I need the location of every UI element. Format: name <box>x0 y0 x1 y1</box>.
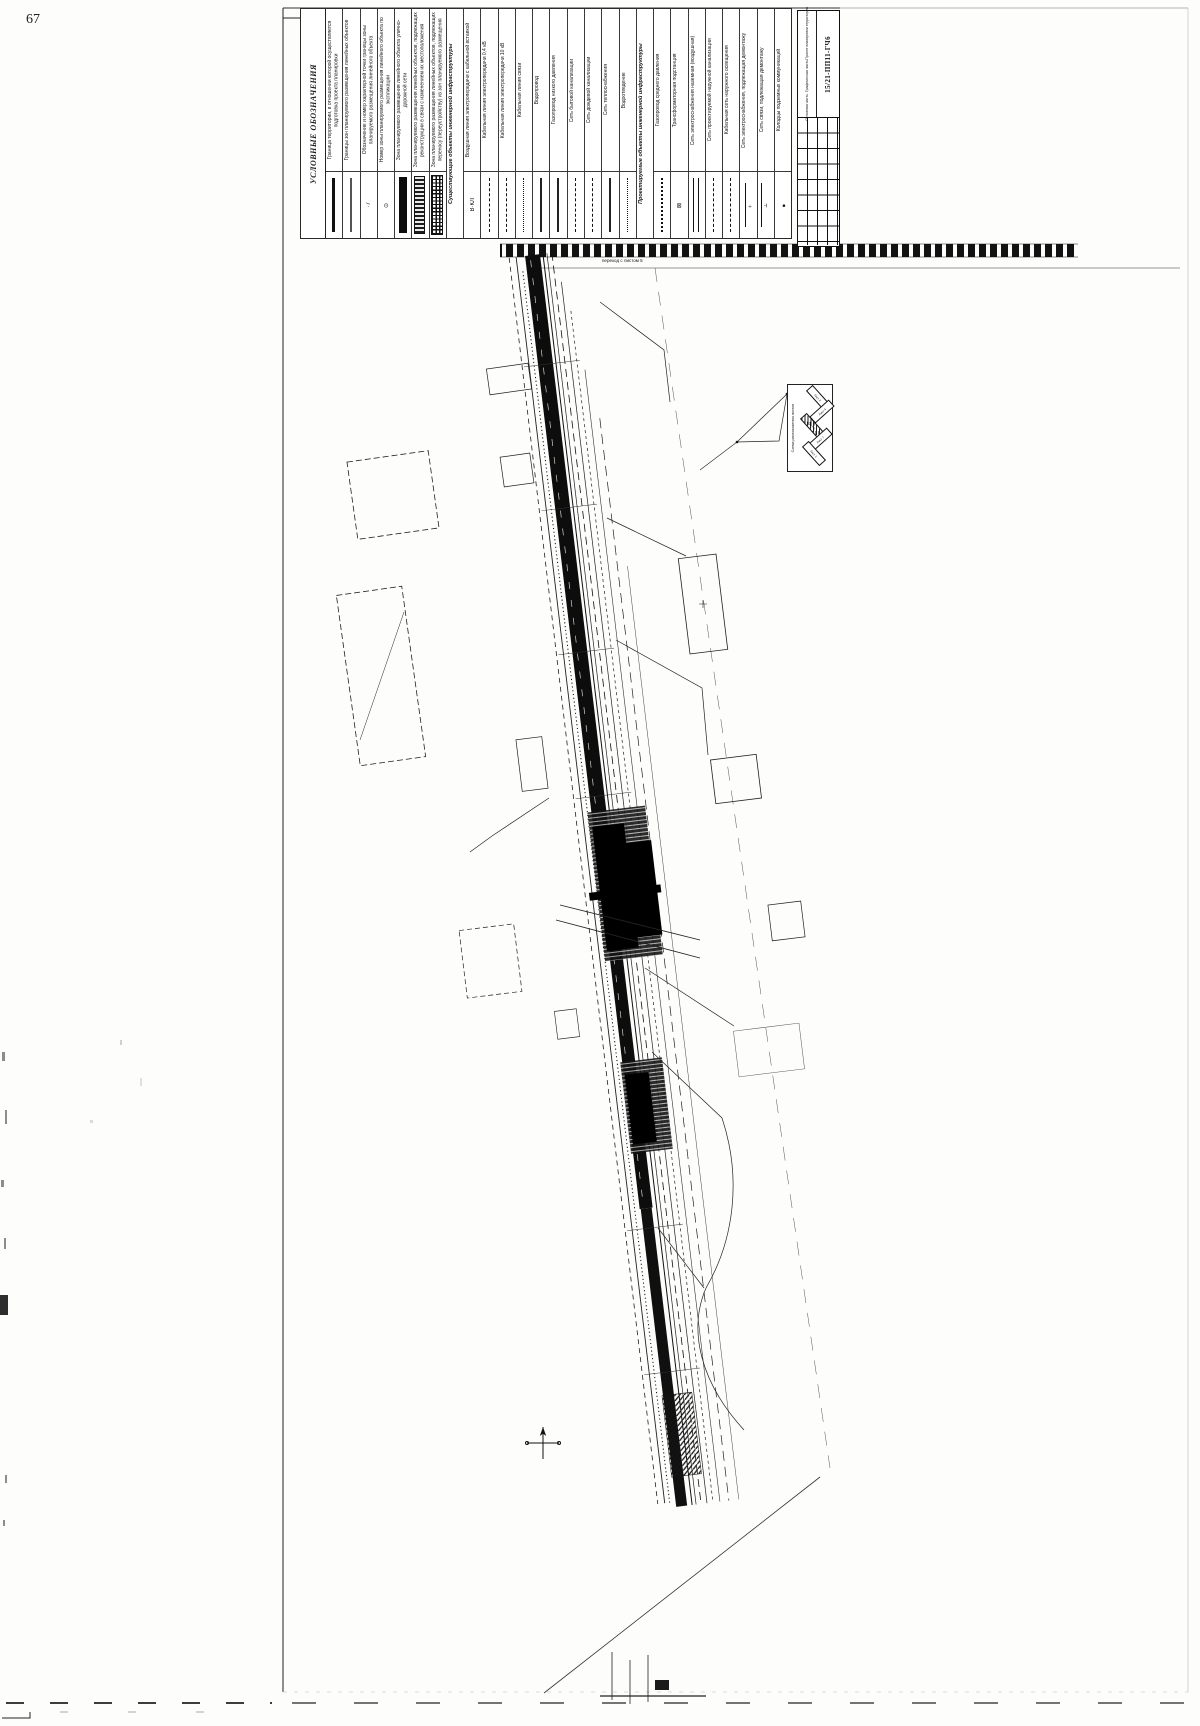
legend-symbol-icon <box>506 178 507 232</box>
legend-entry-symbol <box>706 171 722 238</box>
legend-entry-symbol <box>723 171 739 238</box>
legend-symbol-icon <box>575 178 576 232</box>
legend-entry-label: Воздушная линия электропередачи с кабель… <box>464 9 480 171</box>
legend-entry: Номер зоны планируемого размещения линей… <box>378 9 395 238</box>
inset-caption: Схема расположения листов <box>791 404 795 452</box>
title-block-project-lines: Проект планировки территории Основная ча… <box>798 11 817 117</box>
top-road-band <box>500 244 1180 268</box>
legend-entry-label: Сеть связи, подлежащая демонтажу <box>758 9 774 171</box>
inset-sheets: Лист 2 Лист 4 Лист 6 Лист 7 Лист 1 <box>797 387 831 469</box>
legend-entry-label: Граница территории, в отношении которой … <box>326 9 342 171</box>
legend-entry: Сеть связи, подлежащая демонтажу ∸ <box>758 9 775 238</box>
legend-entry-label: Сеть теплоснабжения <box>602 9 618 171</box>
legend-entry-symbol: ÷ <box>740 171 756 238</box>
legend-symbol-icon <box>489 178 490 232</box>
legend-entry: Трансформаторная подстанция ⊠ <box>671 9 688 238</box>
legend-entry: Сеть проектируемой наружной канализации <box>706 9 723 238</box>
north-compass-icon <box>526 1427 561 1459</box>
legend-entry-symbol <box>689 171 705 238</box>
project-line-1: Проект планировки территории <box>805 7 810 60</box>
legend-symbol-glyph: ● <box>781 202 787 208</box>
signature-grid <box>798 118 839 245</box>
legend-entry: Водоотведение <box>620 9 637 238</box>
legend-entry-label: Существующие объекты инженерной инфрастр… <box>447 9 463 238</box>
legend-symbol-icon <box>540 178 541 232</box>
legend-entry: Зона планируемого размещения линейных об… <box>430 9 447 238</box>
title-block: Проект планировки территории Основная ча… <box>797 10 840 247</box>
legend-entry-symbol: ⊙ <box>378 171 394 238</box>
inset-sheet-label: Лист 2 <box>813 393 822 402</box>
legend-entry: Проектируемые объекты инженерной инфраст… <box>637 9 654 238</box>
legend-symbol-icon <box>332 178 335 232</box>
legend-entry-symbol <box>550 171 566 238</box>
legend-entries: Граница территории, в отношении которой … <box>326 9 791 238</box>
legend-entry-label: Сеть электроснабжения наземная (воздушна… <box>689 9 705 171</box>
legend-entry-symbol: В·КЛ <box>464 171 480 238</box>
legend-entry-label: Зона планируемого размещения линейного о… <box>395 9 411 171</box>
legend-entry-label: Зона планируемого размещения линейных об… <box>412 9 428 171</box>
legend-entry-label: Сеть электроснабжения, подлежащая демонт… <box>740 9 756 171</box>
legend-entry: Граница территории, в отношении которой … <box>326 9 343 238</box>
legend-symbol-icon <box>414 176 425 234</box>
legend-table: УСЛОВНЫЕ ОБОЗНАЧЕНИЯ Граница территории,… <box>300 8 792 239</box>
legend-entry-symbol <box>602 171 618 238</box>
legend-entry-symbol: ● <box>775 171 791 238</box>
legend-entry-symbol <box>412 171 428 238</box>
site-plan-drawing <box>0 0 1200 1726</box>
drawing-number-cell: 15/21-ПП11-ГЧ6 <box>817 11 839 117</box>
legend-entry: Кабельная линия электропередачи 0,4 кВ <box>481 9 498 238</box>
legend-entry-label: Зона планируемого размещения линейных об… <box>430 9 446 171</box>
legend-symbol-icon <box>592 178 593 232</box>
legend-entry-label: Сеть проектируемой наружной канализации <box>706 9 722 171</box>
legend-symbol-icon <box>350 178 352 232</box>
legend-entry-symbol <box>654 171 670 238</box>
legend-entry-label: Колодцы подземных коммуникаций <box>775 9 791 171</box>
legend-entry: Зона планируемого размещения линейных об… <box>412 9 429 238</box>
legend-entry: Обозначение и номер характерной точки гр… <box>361 9 378 238</box>
legend-symbol-icon <box>523 178 524 232</box>
legend-entry-symbol: ⊠ <box>671 171 687 238</box>
main-road-corridor <box>509 248 739 1509</box>
legend-entry-label: Кабельная сеть наружного освещения <box>723 9 739 171</box>
legend-entry-symbol <box>499 171 515 238</box>
bottom-survey-marks <box>600 1652 706 1704</box>
legend-title-cell: УСЛОВНЫЕ ОБОЗНАЧЕНИЯ <box>301 9 326 238</box>
legend-entry-symbol <box>481 171 497 238</box>
legend-symbol-icon <box>745 183 746 227</box>
sheet-border <box>283 8 1188 1692</box>
legend-entry-symbol <box>620 171 636 238</box>
legend-entry: Существующие объекты инженерной инфрастр… <box>447 9 464 238</box>
legend-entry: Зона планируемого размещения линейного о… <box>395 9 412 238</box>
legend-entry: Колодцы подземных коммуникаций ● <box>775 9 791 238</box>
legend-symbol-icon <box>713 178 714 232</box>
legend-entry: Кабельная линия связи <box>516 9 533 238</box>
drawing-number: 15/21-ПП11-ГЧ6 <box>824 36 832 93</box>
legend-entry-label: Кабельная линия электропередачи 10 кВ <box>499 9 515 171</box>
paper-speck <box>120 1040 122 1045</box>
legend-entry-label: Газопровод низкого давления <box>550 9 566 171</box>
legend-entry: Водопровод <box>533 9 550 238</box>
legend-entry: Сеть теплоснабжения <box>602 9 619 238</box>
legend-symbol-icon <box>661 178 663 232</box>
legend-symbol-glyph: ÷ <box>747 202 753 208</box>
film-edge-marks <box>2 1703 1194 1718</box>
legend-symbol-icon <box>557 178 558 232</box>
legend-entry: Газопровод низкого давления <box>550 9 567 238</box>
legend-entry-symbol <box>585 171 601 238</box>
scanned-drawing-page: { "page": { "number": "67" }, "colors": … <box>0 0 1200 1726</box>
legend-symbol-icon <box>730 178 731 232</box>
legend-symbol-glyph: ∸ <box>763 203 770 208</box>
legend-title: УСЛОВНЫЕ ОБОЗНАЧЕНИЯ <box>309 64 318 184</box>
legend-entry-label: Сеть дождевой канализации <box>585 9 601 171</box>
junction-cluster-b <box>620 1057 673 1153</box>
parcel-outlines <box>336 363 805 1077</box>
legend-entry: Воздушная линия электропередачи с кабель… <box>464 9 481 238</box>
legend-symbol-icon <box>609 178 610 232</box>
legend-entry-symbol: ∸ <box>758 171 774 238</box>
legend-entry-symbol <box>343 171 359 238</box>
paper-speck <box>140 1078 142 1086</box>
legend-entry-label: Водопровод <box>533 9 549 171</box>
legend-symbol-glyph: ⊙ <box>383 203 390 208</box>
legend-entry-label: Кабельная линия электропередачи 0,4 кВ <box>481 9 497 171</box>
legend-symbol-icon <box>627 178 628 232</box>
legend-symbol-glyph: ·7 <box>366 202 372 207</box>
legend-entry: Кабельная сеть наружного освещения <box>723 9 740 238</box>
legend-symbol-icon <box>399 177 407 233</box>
legend-entry-symbol <box>430 171 446 238</box>
project-line-2: Основная часть. Графическая часть <box>805 60 810 121</box>
branch-utility-lines <box>470 268 830 1693</box>
legend-entry: Сеть электроснабжения наземная (воздушна… <box>689 9 706 238</box>
junction-cluster-a <box>579 805 668 962</box>
legend-entry-label: Сеть бытовой канализации <box>568 9 584 171</box>
legend-entry-symbol <box>568 171 584 238</box>
legend-entry-label: Обозначение и номер характерной точки гр… <box>361 9 377 171</box>
sheet-scheme-inset: Схема расположения листов Лист 2 Лист 4 … <box>787 384 833 472</box>
title-block-header: Проект планировки территории Основная ча… <box>798 11 839 118</box>
legend-entry-label: Кабельная линия связи <box>516 9 532 171</box>
legend-entry-label: Трансформаторная подстанция <box>671 9 687 171</box>
legend-entry: Сеть бытовой канализации <box>568 9 585 238</box>
legend-entry: Сеть электроснабжения, подлежащая демонт… <box>740 9 757 238</box>
legend-entry-symbol <box>516 171 532 238</box>
legend-entry-symbol: ·7 <box>361 171 377 238</box>
legend-symbol-glyph: ⊠ <box>676 203 683 208</box>
legend-entry-label: Проектируемые объекты инженерной инфраст… <box>637 9 653 238</box>
inset-caption-cell: Схема расположения листов <box>789 385 797 471</box>
legend-entry: Газопровод среднего давления <box>654 9 671 238</box>
inset-sheet-label: Лист 4 <box>817 407 826 416</box>
plan-annotation-top: переход с листом 5 <box>602 258 643 263</box>
inset-sheet-label: Лист 6 <box>807 421 816 430</box>
legend-symbol-icon <box>693 178 699 232</box>
paper-speck <box>90 1120 93 1123</box>
legend-entry: Кабельная линия электропередачи 10 кВ <box>499 9 516 238</box>
scan-artifacts <box>0 1052 8 1526</box>
legend-symbol-glyph: В·КЛ <box>470 198 476 211</box>
inset-sheet-label: Лист 7 <box>815 435 824 444</box>
legend-entry-label: Водоотведение <box>620 9 636 171</box>
legend-entry: Границы зон планируемого размещения лине… <box>343 9 360 238</box>
legend-entry-symbol <box>395 171 411 238</box>
legend-entry-symbol <box>533 171 549 238</box>
legend-symbol-icon <box>431 175 443 235</box>
legend-entry-symbol <box>326 171 342 238</box>
legend-entry-label: Границы зон планируемого размещения лине… <box>343 9 359 171</box>
legend-entry-label: Газопровод среднего давления <box>654 9 670 171</box>
inset-sheet-label: Лист 1 <box>809 449 818 458</box>
legend-entry-label: Номер зоны планируемого размещения линей… <box>378 9 394 171</box>
legend-entry: Сеть дождевой канализации <box>585 9 602 238</box>
